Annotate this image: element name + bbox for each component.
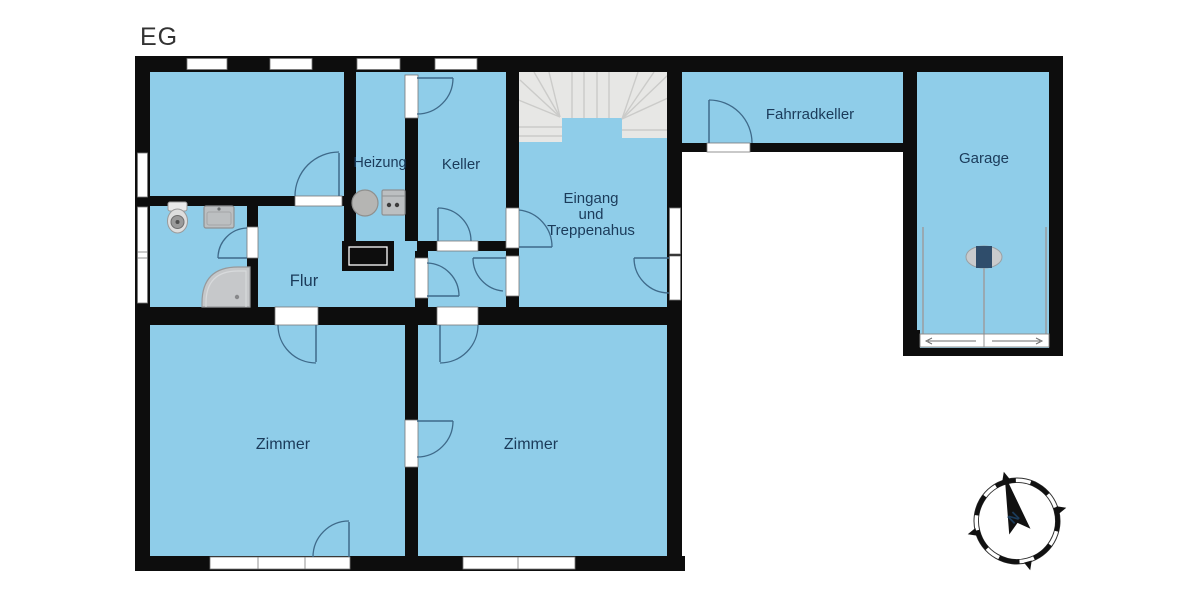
door-gap — [437, 307, 478, 325]
room-label-eingang-line1: Eingang — [563, 190, 618, 207]
boiler-icon — [352, 190, 378, 216]
compass-icon: N — [955, 459, 1080, 584]
window — [463, 557, 575, 569]
window — [435, 59, 477, 70]
room-label-garage: Garage — [959, 150, 1009, 167]
door-gap — [437, 241, 478, 251]
window — [187, 59, 227, 70]
door-gap — [405, 75, 418, 118]
room-label-flur: Flur — [290, 272, 319, 290]
door-gap — [506, 208, 519, 248]
floorplan-canvas: N EG Heizung Keller Eingang und Treppena… — [0, 0, 1200, 600]
door-gap — [295, 196, 342, 206]
room-label-eingang-line2: und — [578, 206, 603, 223]
window — [357, 59, 400, 70]
room-label-zimmer-right: Zimmer — [504, 436, 559, 453]
room-label-zimmer-left: Zimmer — [256, 436, 311, 453]
door-gap — [247, 227, 258, 258]
garage-floor — [910, 64, 1056, 352]
window — [138, 207, 148, 303]
sink-icon — [204, 206, 234, 228]
door-gap — [275, 307, 318, 325]
floorplan-drawing: N EG Heizung Keller Eingang und Treppena… — [0, 0, 1200, 600]
door-gap — [506, 256, 519, 296]
window — [210, 557, 350, 569]
door-gap — [707, 143, 750, 152]
window — [270, 59, 312, 70]
window — [138, 153, 148, 197]
room-label-keller: Keller — [442, 156, 480, 173]
chimney — [342, 241, 394, 271]
room-label-heizung: Heizung — [353, 155, 406, 171]
window — [670, 208, 681, 254]
door-gap — [415, 258, 428, 298]
toilet-icon — [168, 202, 188, 233]
page-title: EG — [140, 23, 178, 51]
room-label-eingang-line3: Treppenahus — [547, 222, 635, 239]
washer-icon — [382, 190, 405, 215]
door-gap — [670, 256, 681, 300]
door-gap — [405, 420, 418, 467]
room-label-fahrradkeller: Fahrradkeller — [766, 106, 854, 123]
